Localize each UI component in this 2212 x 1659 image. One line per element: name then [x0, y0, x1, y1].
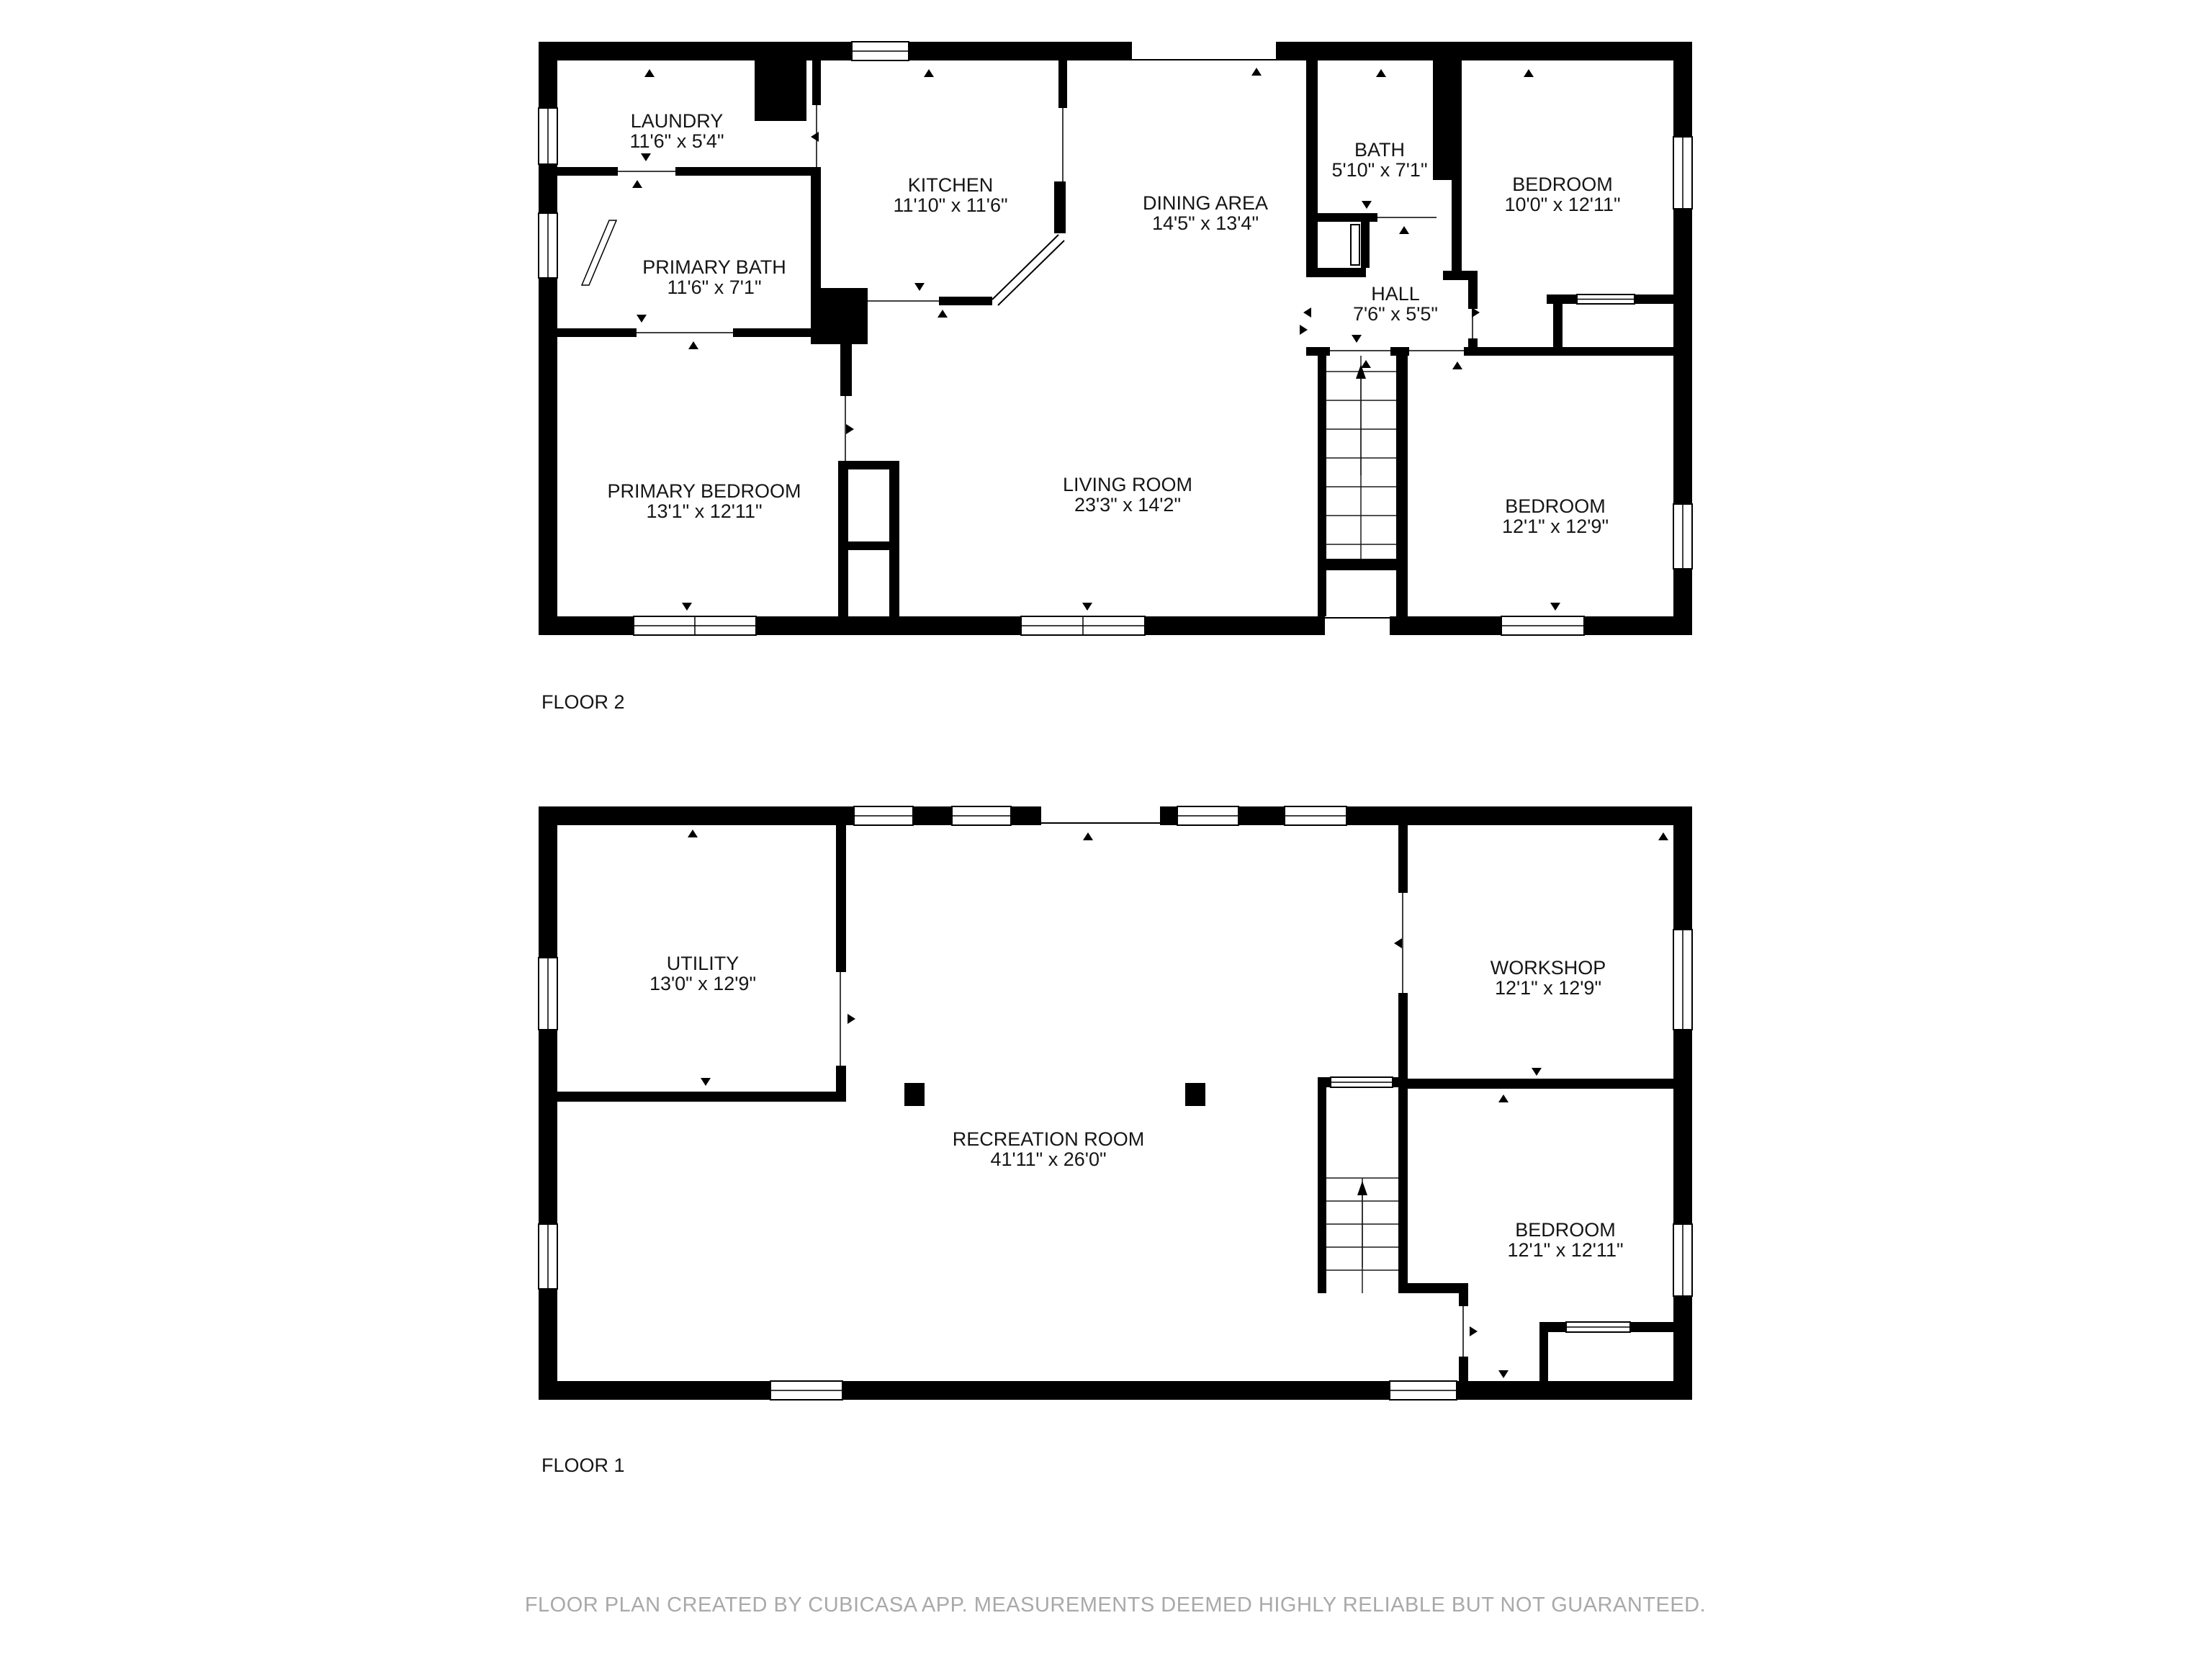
floor2-closet-slider [1577, 295, 1635, 304]
floor2-window-bottom-center [1021, 616, 1145, 635]
room-dims-hall: 7'6" x 5'5" [1353, 303, 1438, 325]
room-label-hall: HALL [1371, 283, 1420, 305]
floor1-plan: UTILITY 13'0" x 12'9" WORKSHOP 12'1" x 1… [539, 806, 1692, 1476]
floor1-outer-walls [539, 806, 1692, 1400]
floor2-window-bottom-left [634, 616, 756, 635]
floor2-window-right-bedroom-top [1673, 137, 1692, 209]
room-dims-utility: 13'0" x 12'9" [649, 973, 756, 994]
floor1-staircase [1326, 1178, 1398, 1293]
floor1-window-bottom-right [1390, 1381, 1457, 1400]
room-dims-bath: 5'10" x 7'1" [1331, 159, 1427, 181]
room-dims-workshop: 12'1" x 12'9" [1495, 977, 1601, 999]
floor2-markers [632, 68, 1560, 611]
floor1-window-top-1 [854, 806, 913, 825]
floor1-window-left-upper [539, 958, 557, 1030]
floor2-door-openings [618, 60, 1473, 618]
floor1-stair-window [1331, 1077, 1393, 1087]
floor2-window-bottom-right [1501, 616, 1584, 635]
post-right [1185, 1083, 1205, 1106]
floor1-room-labels: UTILITY 13'0" x 12'9" WORKSHOP 12'1" x 1… [649, 953, 1624, 1261]
room-dims-primary-bedroom: 13'1" x 12'11" [646, 500, 762, 522]
room-dims-bedroom-top: 10'0" x 12'11" [1504, 194, 1620, 215]
room-label-kitchen: KITCHEN [908, 174, 994, 196]
stairs-up-arrow [1357, 1181, 1367, 1195]
room-label-bedroom-right: BEDROOM [1505, 495, 1606, 517]
post-left [904, 1083, 925, 1106]
floor1-closet-slider [1566, 1322, 1630, 1332]
room-label-primary-bath: PRIMARY BATH [642, 256, 786, 278]
floor1-window-top-2 [952, 806, 1011, 825]
floor1-door-openings [840, 823, 1463, 1357]
floor1-window-left-lower [539, 1224, 557, 1289]
floor1-markers [688, 829, 1668, 1378]
footer-disclaimer: FLOOR PLAN CREATED BY CUBICASA APP. MEAS… [525, 1593, 1706, 1617]
kitchen-bay-window [992, 235, 1064, 305]
room-label-living-room: LIVING ROOM [1063, 474, 1192, 495]
room-label-recreation-room: RECREATION ROOM [953, 1128, 1145, 1150]
room-dims-primary-bath: 11'6" x 7'1" [667, 276, 761, 298]
room-label-laundry: LAUNDRY [631, 110, 724, 132]
floor2-window-right-bedroom-bottom [1673, 504, 1692, 569]
room-label-workshop: WORKSHOP [1491, 957, 1606, 979]
floor1-window-right-bedroom [1673, 1224, 1692, 1296]
floor1-window-right-workshop [1673, 930, 1692, 1030]
room-label-bath: BATH [1354, 139, 1405, 161]
room-label-dining-area: DINING AREA [1143, 192, 1268, 214]
floor2-plan: LAUNDRY 11'6" x 5'4" KITCHEN 11'10" x 11… [539, 42, 1692, 713]
room-dims-living-room: 23'3" x 14'2" [1074, 494, 1181, 516]
floor1-window-top-4 [1285, 806, 1346, 825]
room-label-primary-bedroom: PRIMARY BEDROOM [607, 480, 801, 502]
room-dims-bedroom-right: 12'1" x 12'9" [1502, 516, 1609, 537]
room-dims-recreation-room: 41'11" x 26'0" [990, 1148, 1106, 1170]
room-dims-laundry: 11'6" x 5'4" [629, 130, 724, 152]
room-dims-dining-area: 14'5" x 13'4" [1152, 212, 1259, 234]
floor1-window-top-3 [1177, 806, 1238, 825]
floor2-staircase [1326, 356, 1396, 559]
floor2-window-left-primary-bath [539, 213, 557, 278]
chimney-block [755, 42, 806, 121]
floor1-window-bottom-left [770, 1381, 842, 1400]
floorplan-canvas: LAUNDRY 11'6" x 5'4" KITCHEN 11'10" x 11… [0, 0, 2212, 1659]
floor2-window-left-laundry [539, 108, 557, 164]
room-label-bedroom-top: BEDROOM [1512, 174, 1613, 195]
room-dims-kitchen: 11'10" x 11'6" [893, 194, 1007, 216]
floor1-interior-walls [539, 825, 1673, 1381]
closet-door-leaf [1351, 225, 1359, 265]
floor2-window-top [852, 42, 909, 60]
shower-door-glyph [582, 220, 616, 285]
room-label-utility: UTILITY [667, 953, 739, 974]
room-dims-bedroom-floor1: 12'1" x 12'11" [1507, 1239, 1623, 1261]
floor2-title: FLOOR 2 [541, 691, 625, 713]
floor1-title: FLOOR 1 [541, 1455, 625, 1476]
room-label-bedroom-floor1: BEDROOM [1515, 1219, 1616, 1241]
